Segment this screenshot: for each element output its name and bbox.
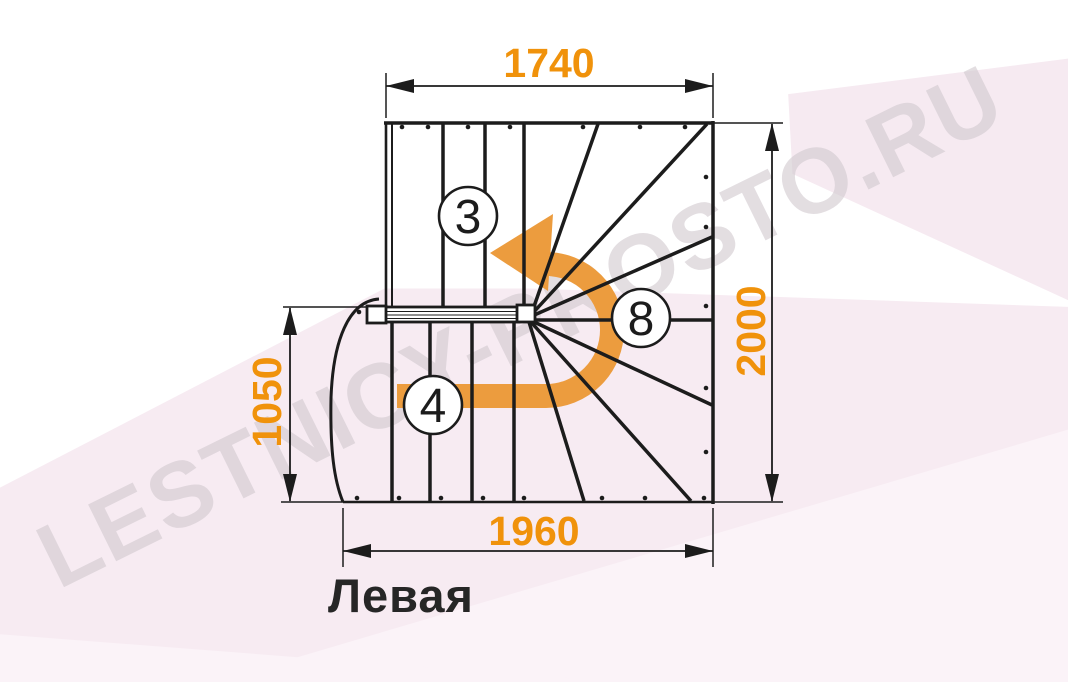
dimension-value-top: 1740 [503,40,594,86]
arrowhead-right [685,544,713,558]
arrowhead-right [685,79,713,93]
arrowhead-left [343,544,371,558]
winder-count: 8 [628,293,655,346]
arrowhead-left [386,79,414,93]
dimension-value-bottom: 1960 [488,508,579,554]
arrowhead-up [765,123,779,151]
dimension-values: 1740 2000 1050 1960 [244,40,774,554]
curved-stringer-line [331,299,379,502]
arrowhead-down [765,474,779,502]
left-newel-post [367,306,386,323]
right-newel-post [517,305,535,322]
winder-step-line [531,124,707,315]
dimension-lower-flight-depth [283,307,366,502]
lower-flight-count: 4 [420,380,447,433]
arrowhead-down [283,474,297,502]
dimension-value-right: 2000 [728,285,774,376]
dimension-value-left: 1050 [244,356,290,447]
staircase-plan-page: LESTNICY-PROSTO.RU [0,0,1068,682]
riser-band [367,305,535,323]
variant-label: Левая [328,568,628,623]
arrowhead-up [283,307,297,335]
upper-flight-count: 3 [455,191,482,244]
